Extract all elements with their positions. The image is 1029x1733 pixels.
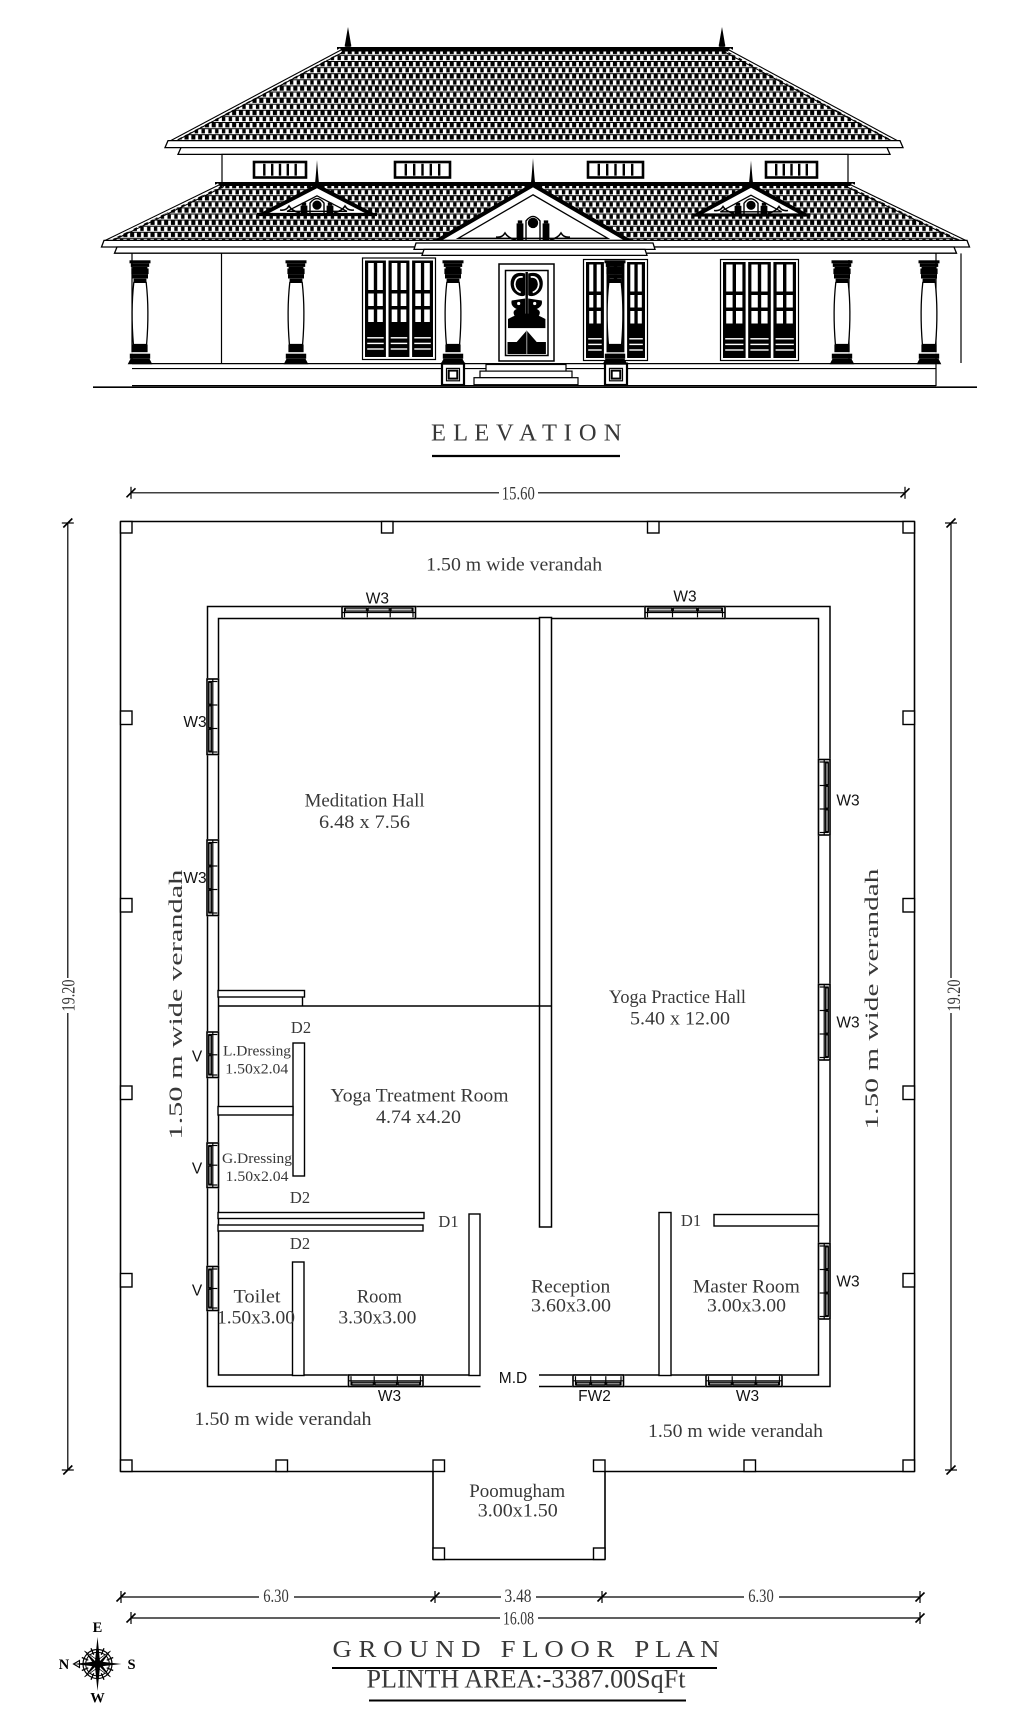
svg-text:6.30: 6.30	[263, 1586, 289, 1607]
svg-text:V: V	[192, 1049, 203, 1066]
svg-text:W3: W3	[673, 589, 696, 606]
svg-text:W3: W3	[736, 1388, 759, 1405]
svg-text:W3: W3	[183, 870, 206, 887]
svg-text:V: V	[192, 1161, 203, 1178]
svg-text:1.50 m wide verandah: 1.50 m wide verandah	[648, 1421, 824, 1442]
svg-text:W3: W3	[183, 714, 206, 731]
svg-text:16.08: 16.08	[503, 1609, 534, 1630]
svg-text:W3: W3	[366, 591, 389, 608]
svg-text:1.50 m wide verandah: 1.50 m wide verandah	[862, 868, 883, 1130]
svg-text:D1: D1	[438, 1212, 458, 1231]
svg-text:19.20: 19.20	[944, 980, 965, 1012]
svg-text:V: V	[192, 1283, 203, 1300]
svg-text:Meditation Hall: Meditation Hall	[305, 791, 425, 812]
svg-text:D2: D2	[291, 1018, 311, 1037]
svg-text:W3: W3	[836, 1015, 859, 1032]
svg-text:4.74 x4.20: 4.74 x4.20	[376, 1107, 461, 1128]
svg-text:1.50 m wide verandah: 1.50 m wide verandah	[426, 555, 603, 576]
svg-text:1.50x2.04: 1.50x2.04	[226, 1169, 290, 1185]
svg-text:G.Dressing: G.Dressing	[222, 1151, 293, 1167]
svg-text:W3: W3	[378, 1388, 401, 1405]
svg-text:D2: D2	[290, 1188, 310, 1207]
svg-text:1.50 m wide verandah: 1.50 m wide verandah	[195, 1409, 373, 1430]
svg-text:Master Room: Master Room	[693, 1277, 800, 1298]
svg-text:G R O U N D F L O O R P L: G R O U N D F L O O R P L A N	[333, 1637, 720, 1663]
svg-text:5.40 x 12.00: 5.40 x 12.00	[630, 1008, 730, 1029]
svg-text:19.20: 19.20	[58, 980, 79, 1012]
svg-text:W3: W3	[836, 1274, 859, 1291]
svg-text:3.00x3.00: 3.00x3.00	[707, 1296, 786, 1317]
svg-text:3.30x3.00: 3.30x3.00	[338, 1308, 416, 1329]
svg-text:Room: Room	[357, 1287, 402, 1308]
svg-text:PLINTH AREA:-3387.00SqFt: PLINTH AREA:-3387.00SqFt	[367, 1665, 687, 1694]
svg-text:Poomugham: Poomugham	[469, 1481, 565, 1502]
svg-text:Toilet: Toilet	[234, 1287, 282, 1308]
svg-text:E: E	[93, 1620, 103, 1636]
svg-text:D2: D2	[290, 1234, 310, 1253]
svg-text:1.50x3.00: 1.50x3.00	[217, 1308, 295, 1329]
svg-text:6.30: 6.30	[748, 1586, 774, 1607]
svg-text:L.Dressing: L.Dressing	[223, 1044, 292, 1060]
svg-text:6.48 x 7.56: 6.48 x 7.56	[319, 812, 410, 833]
svg-text:S: S	[127, 1657, 135, 1673]
svg-text:3.60x3.00: 3.60x3.00	[531, 1296, 611, 1317]
svg-text:Yoga Practice Hall: Yoga Practice Hall	[609, 987, 746, 1008]
svg-text:W: W	[90, 1691, 105, 1707]
svg-text:N: N	[59, 1657, 70, 1673]
svg-text:W3: W3	[836, 793, 859, 810]
svg-text:M.D: M.D	[499, 1370, 527, 1387]
svg-text:E L E V A T I O N: E L E V A T I O N	[431, 420, 622, 447]
svg-text:1.50x2.04: 1.50x2.04	[225, 1062, 289, 1078]
svg-text:3.00x1.50: 3.00x1.50	[478, 1501, 558, 1522]
svg-text:Reception: Reception	[531, 1277, 611, 1298]
svg-text:15.60: 15.60	[502, 484, 535, 505]
svg-text:Yoga Treatment Room: Yoga Treatment Room	[331, 1086, 509, 1107]
svg-text:FW2: FW2	[578, 1388, 611, 1405]
svg-text:1.50 m wide verandah: 1.50 m wide verandah	[166, 869, 187, 1140]
svg-text:D1: D1	[681, 1211, 701, 1230]
svg-text:3.48: 3.48	[505, 1586, 532, 1607]
